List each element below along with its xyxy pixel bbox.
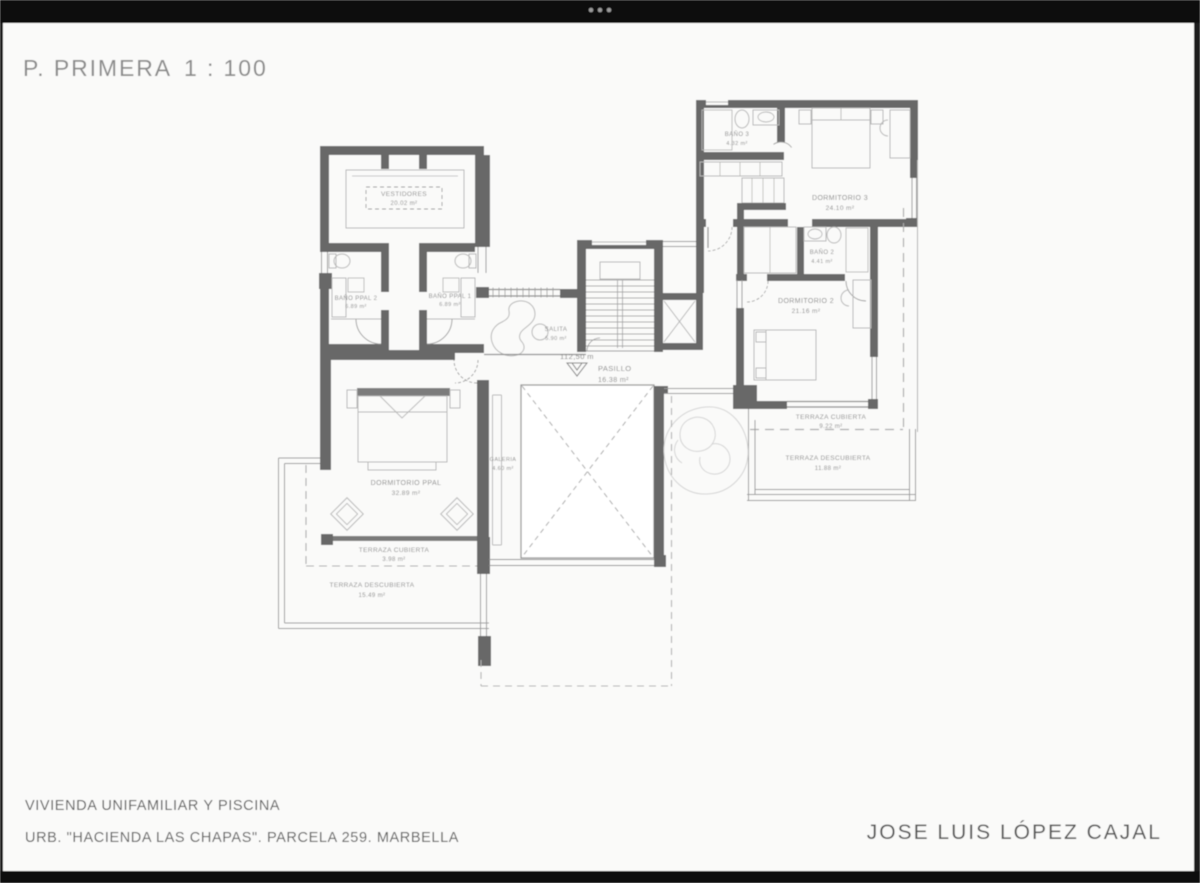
svg-text:1 : 100: 1 : 100 bbox=[184, 55, 268, 81]
svg-text:4.41 m²: 4.41 m² bbox=[811, 259, 832, 265]
svg-text:20.02 m²: 20.02 m² bbox=[391, 201, 418, 207]
svg-text:5.90 m²: 5.90 m² bbox=[545, 336, 566, 342]
svg-text:24.10 m²: 24.10 m² bbox=[826, 205, 855, 212]
svg-text:TERRAZA DESCUBIERTA: TERRAZA DESCUBIERTA bbox=[329, 582, 414, 589]
svg-text:VESTIDORES: VESTIDORES bbox=[381, 191, 427, 198]
svg-text:21.16 m²: 21.16 m² bbox=[792, 308, 821, 315]
svg-text:P. PRIMERA: P. PRIMERA bbox=[23, 55, 172, 81]
svg-text:BAÑO PPAL 1: BAÑO PPAL 1 bbox=[429, 293, 472, 300]
svg-text:TERRAZA CUBIERTA: TERRAZA CUBIERTA bbox=[359, 547, 430, 554]
svg-text:16.38 m²: 16.38 m² bbox=[598, 377, 629, 384]
svg-text:4.32 m²: 4.32 m² bbox=[726, 141, 747, 147]
svg-text:SALITA: SALITA bbox=[545, 327, 568, 333]
svg-text:TERRAZA CUBIERTA: TERRAZA CUBIERTA bbox=[796, 414, 867, 421]
svg-text:6.89 m²: 6.89 m² bbox=[345, 304, 366, 310]
svg-text:DORMITORIO PPAL: DORMITORIO PPAL bbox=[371, 480, 442, 487]
svg-text:BAÑO PPAL 2: BAÑO PPAL 2 bbox=[335, 295, 378, 302]
svg-text:DORMITORIO 3: DORMITORIO 3 bbox=[812, 195, 868, 202]
svg-text:BAÑO 3: BAÑO 3 bbox=[725, 131, 750, 138]
svg-text:BAÑO 2: BAÑO 2 bbox=[810, 249, 835, 256]
svg-text:URB. "HACIENDA LAS CHAPAS". PA: URB. "HACIENDA LAS CHAPAS". PARCELA 259.… bbox=[25, 830, 459, 846]
svg-text:DORMITORIO 2: DORMITORIO 2 bbox=[778, 298, 834, 305]
svg-text:11.88 m²: 11.88 m² bbox=[815, 466, 841, 472]
svg-text:32.89 m²: 32.89 m² bbox=[392, 490, 421, 497]
svg-text:GALERIA: GALERIA bbox=[490, 457, 517, 463]
svg-text:15.49 m²: 15.49 m² bbox=[359, 593, 386, 599]
svg-text:112,50 m: 112,50 m bbox=[560, 352, 594, 361]
svg-text:4.60 m²: 4.60 m² bbox=[492, 466, 513, 472]
svg-text:JOSE LUIS LÓPEZ CAJAL: JOSE LUIS LÓPEZ CAJAL bbox=[867, 821, 1162, 844]
svg-text:PASILLO: PASILLO bbox=[598, 364, 632, 373]
svg-text:6.89 m²: 6.89 m² bbox=[439, 302, 460, 308]
svg-text:VIVIENDA UNIFAMILIAR Y PISCINA: VIVIENDA UNIFAMILIAR Y PISCINA bbox=[25, 798, 280, 814]
svg-text:TERRAZA DESCUBIERTA: TERRAZA DESCUBIERTA bbox=[785, 455, 870, 462]
svg-text:3.98 m²: 3.98 m² bbox=[382, 557, 405, 563]
